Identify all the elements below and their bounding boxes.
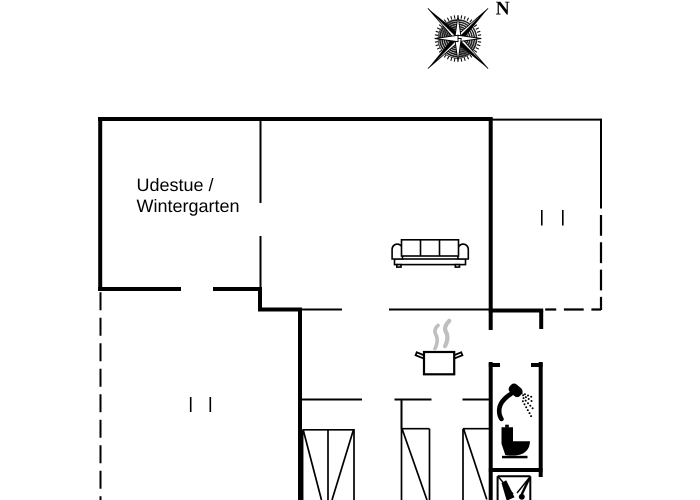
svg-text:N: N: [496, 0, 510, 19]
svg-text:Wintergarten: Wintergarten: [137, 196, 240, 216]
svg-text:Udestue /: Udestue /: [137, 175, 214, 195]
